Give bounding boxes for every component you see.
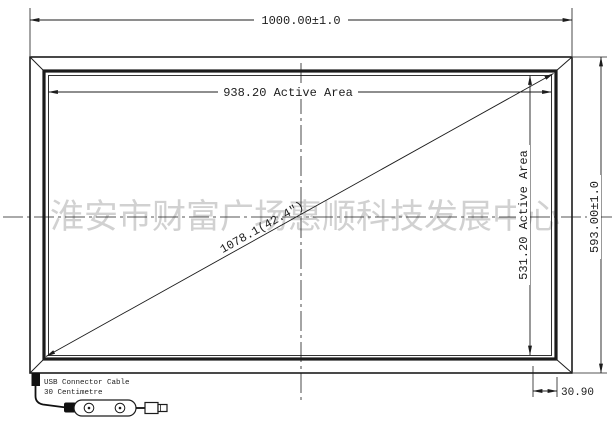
corner-bevel-top-right (556, 57, 572, 71)
dim-overall-height-label: 593.00±1.0 (588, 181, 602, 253)
technical-drawing: 淮安市财富广场惠顺科技发展中心 1078.1(42.4") 1000.00±1.… (0, 0, 616, 421)
usb-plug-tip (158, 405, 167, 412)
usb-controller-box (74, 400, 136, 416)
usb-screw-dot-right (119, 407, 122, 410)
dim-edge-margin-label: 30.90 (561, 387, 594, 399)
usb-connector-block (32, 373, 41, 386)
dim-overall-width-label: 1000.00±1.0 (261, 14, 340, 28)
drawing-canvas: 淮安市财富广场惠顺科技发展中心 1078.1(42.4") 1000.00±1.… (0, 0, 616, 421)
usb-note-line1: USB Connector Cable (44, 379, 130, 387)
corner-bevel-bottom-left (30, 359, 44, 373)
usb-note-line2: 30 Centimetre (44, 389, 103, 397)
dim-active-width-label: 938.20 Active Area (223, 86, 353, 100)
dim-active-height-label: 531.20 Active Area (517, 150, 531, 280)
corner-bevel-bottom-right (556, 359, 572, 373)
usb-screw-dot-left (88, 407, 91, 410)
dim-active-height-label-group: 531.20 Active Area (516, 145, 531, 285)
corner-bevel-top-left (30, 57, 44, 71)
usb-plug-body (145, 403, 158, 414)
dim-overall-height-label-group: 593.00±1.0 (587, 175, 602, 259)
